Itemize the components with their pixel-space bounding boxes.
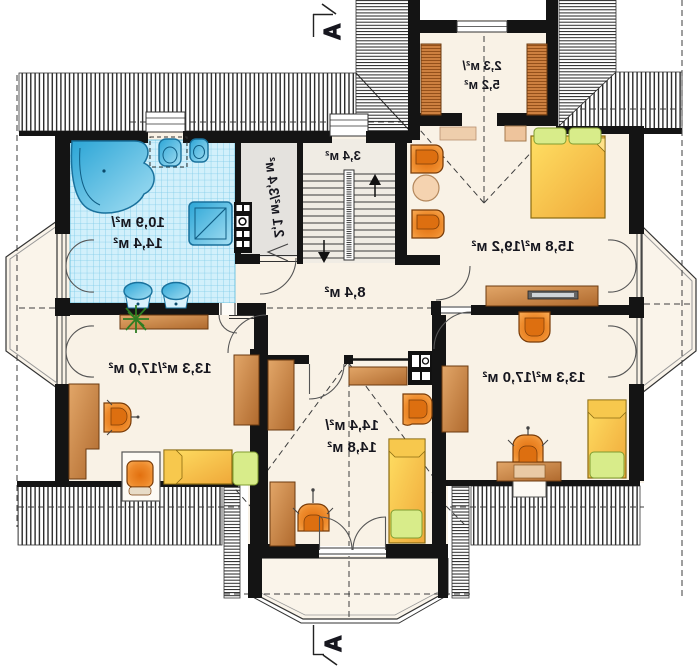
svg-text:A: A bbox=[319, 23, 345, 40]
svg-text:3,4 м²: 3,4 м² bbox=[325, 148, 361, 163]
svg-text:5,2 м²: 5,2 м² bbox=[464, 77, 500, 92]
svg-text:14,4 м²/: 14,4 м²/ bbox=[324, 417, 378, 434]
svg-text:14,4 м²: 14,4 м² bbox=[113, 235, 162, 252]
svg-text:13,3 м²/17,0 м²: 13,3 м²/17,0 м² bbox=[108, 360, 211, 377]
svg-text:10,9 м²/: 10,9 м²/ bbox=[110, 214, 164, 231]
svg-text:2,3 м²/: 2,3 м²/ bbox=[462, 58, 502, 73]
svg-text:A: A bbox=[320, 635, 346, 652]
svg-text:8,4 м²: 8,4 м² bbox=[324, 284, 365, 301]
svg-text:13,3 м²/17,0 м²: 13,3 м²/17,0 м² bbox=[482, 369, 585, 386]
svg-text:15,8 м²/19,2 м²: 15,8 м²/19,2 м² bbox=[471, 238, 574, 255]
svg-text:14,8 м²: 14,8 м² bbox=[327, 439, 376, 456]
